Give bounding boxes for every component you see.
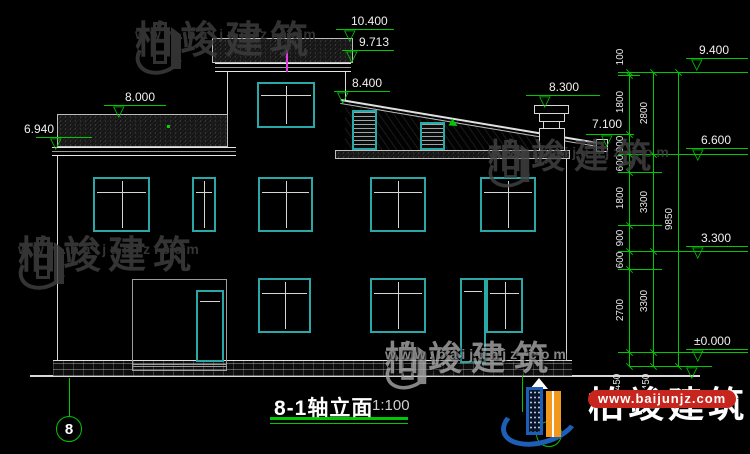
right-wall <box>566 150 567 361</box>
drawing-title: 8-1轴立面 <box>274 392 373 422</box>
watermark-brand: 柏竣建筑 <box>18 237 198 275</box>
elevation-triangle-icon: ▽ <box>692 348 704 363</box>
dim-line-horizontal <box>618 352 748 353</box>
dim-value-label: 3300 <box>640 290 650 312</box>
parapet-fascia <box>215 63 351 72</box>
dim-value-label: 2800 <box>640 102 650 124</box>
elevation-triangle-icon: ▽ <box>539 94 551 109</box>
louver-vent <box>420 122 445 150</box>
axis-bubble-8: 8 <box>56 416 82 442</box>
watermark-logo-icon <box>135 22 191 80</box>
dim-value-label: 2700 <box>616 299 626 321</box>
dim-line-horizontal <box>618 251 748 252</box>
elevation-triangle-icon: ▽ <box>337 90 349 105</box>
window <box>93 177 150 232</box>
elevation-label: 10.400 <box>351 15 388 27</box>
dim-value-label: 3300 <box>640 191 650 213</box>
elevation-label: 8.400 <box>352 77 382 89</box>
title-underline-thin <box>270 423 408 424</box>
elevation-triangle-icon: ▽ <box>692 245 704 260</box>
dim-line-horizontal <box>618 172 662 173</box>
dim-value-label: 9850 <box>665 208 675 230</box>
vent-pipe <box>286 50 288 72</box>
window <box>370 177 426 232</box>
watermark-url: www.baijunjz.com <box>18 241 203 257</box>
watermark-logo-icon <box>18 237 74 295</box>
elevation-triangle-icon: ▽ <box>113 104 125 119</box>
elevation-triangle-icon: ▽ <box>50 136 62 151</box>
elevation-line <box>652 366 710 367</box>
brand-logo-corner: 柏竣建筑 www.baijunjz.com <box>500 383 750 453</box>
door <box>196 290 224 362</box>
logo-roof-peak <box>530 378 548 389</box>
axis-bubble-label: 8 <box>65 421 73 438</box>
dim-line-vertical <box>653 72 654 366</box>
plinth-band <box>53 360 572 376</box>
dim-value-label: 100 <box>616 49 626 66</box>
parapet-band <box>212 38 353 63</box>
door <box>460 278 486 363</box>
elevation-triangle-icon: ▽ <box>344 28 356 43</box>
elevation-label: 9.713 <box>359 36 389 48</box>
dim-value-label: 1800 <box>616 91 626 113</box>
elevation-label: 6.600 <box>701 134 731 146</box>
dim-value-label: 600 <box>616 252 626 269</box>
elevation-label: 8.300 <box>549 81 579 93</box>
center-wall-left <box>227 72 228 114</box>
elevation-triangle-icon: ▽ <box>692 147 704 162</box>
roof-survey-dot <box>167 125 170 128</box>
window <box>258 177 313 232</box>
dim-line-horizontal <box>618 154 748 155</box>
dim-value-label: 450 <box>642 374 652 391</box>
window <box>370 278 426 333</box>
dim-line-vertical <box>629 72 630 366</box>
dim-value-label: 900 <box>616 230 626 247</box>
right-eave-band <box>335 150 570 159</box>
window <box>258 278 311 333</box>
dim-line-vertical <box>678 72 679 366</box>
elevation-triangle-icon: ▽ <box>601 133 613 148</box>
window <box>480 177 536 232</box>
louver-vent <box>352 110 377 150</box>
chimney-body <box>539 128 565 151</box>
logo-brand-text: 柏竣建筑 <box>588 387 748 423</box>
dim-line-vertical <box>69 378 70 416</box>
elevation-triangle-icon: ▽ <box>691 57 703 72</box>
left-wall <box>57 155 58 361</box>
elevation-line <box>526 95 600 96</box>
elevation-label: 8.000 <box>125 91 155 103</box>
window <box>257 82 315 128</box>
dim-value-label: 900 <box>616 136 626 153</box>
dim-line-horizontal <box>618 225 662 226</box>
elevation-label: 3.300 <box>701 232 731 244</box>
dim-value-label: 600 <box>616 155 626 172</box>
elevation-label: 7.100 <box>592 118 622 130</box>
left-flat-roof <box>57 114 228 147</box>
dim-line-vertical <box>522 376 523 412</box>
dim-line-horizontal <box>618 269 662 270</box>
elevation-line <box>36 137 92 138</box>
drawing-scale: 1:100 <box>372 397 410 414</box>
window <box>486 278 523 333</box>
window <box>192 177 216 232</box>
dim-value-label: 1800 <box>616 187 626 209</box>
dim-value-label: 450 <box>613 374 623 391</box>
elevation-triangle-icon: ▽ <box>686 365 698 380</box>
elevation-triangle-icon: ▽ <box>346 49 358 64</box>
axis-bubble-right-hidden <box>536 421 562 447</box>
cad-elevation-drawing: 8-1轴立面 1:100 8 柏竣建筑 www.baijunjz.com 柏竣建… <box>0 0 750 454</box>
left-roof-fascia <box>52 147 236 156</box>
elevation-label: 9.400 <box>699 44 729 56</box>
logo-url-band: www.baijunjz.com <box>588 390 736 408</box>
dim-line-horizontal <box>618 72 748 73</box>
